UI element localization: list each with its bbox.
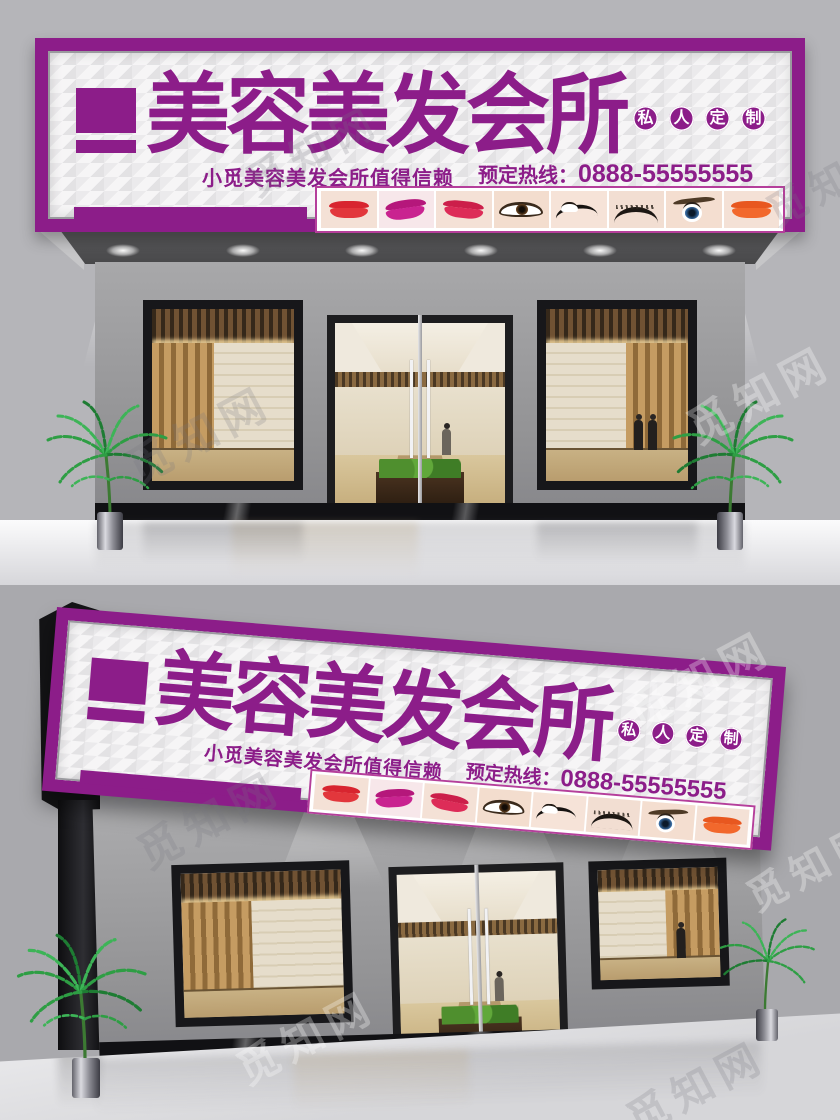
palm-fronds bbox=[710, 915, 820, 1015]
palm-fronds bbox=[660, 400, 800, 520]
photo-blue-eye bbox=[666, 191, 722, 228]
person-silhouette bbox=[442, 429, 451, 455]
door-handle bbox=[427, 360, 430, 458]
plant-pot bbox=[97, 512, 123, 550]
photo-liner-eye bbox=[531, 792, 586, 831]
decor-long-bar bbox=[80, 770, 302, 801]
potted-palm-left bbox=[10, 930, 160, 1100]
potted-palm-right bbox=[700, 915, 820, 1055]
photo-red-lips bbox=[313, 774, 368, 813]
storefront-signage-poster: 美容美发会所 私 人 定 制 小觅美容美发会所值得信赖 预定热线：0888-55… bbox=[0, 0, 840, 1120]
soffit bbox=[60, 230, 780, 264]
plant-pot bbox=[72, 1058, 100, 1098]
photo-orange-lips bbox=[694, 805, 749, 844]
photo-brown-eye bbox=[494, 191, 550, 228]
person-silhouette bbox=[634, 420, 643, 450]
decor-long-bar bbox=[74, 207, 307, 221]
potted-palm-left bbox=[40, 400, 180, 550]
badge-char: 定 bbox=[705, 106, 730, 131]
badge-char: 私 bbox=[616, 718, 642, 744]
photo-magenta-lips bbox=[379, 191, 435, 228]
shop-title: 美容美发会所 bbox=[146, 67, 656, 163]
badge-private-custom: 私 人 定 制 bbox=[633, 106, 766, 131]
shop-sign-lightbox: 美容美发会所 私 人 定 制 小觅美容美发会所值得信赖 预定热线：0888-55… bbox=[35, 38, 805, 232]
decor-bar bbox=[76, 140, 136, 153]
plant-pot bbox=[717, 512, 743, 550]
downlight-icon bbox=[583, 244, 617, 257]
badge-char: 人 bbox=[650, 721, 676, 747]
badge-char: 制 bbox=[741, 106, 766, 131]
door-mullion bbox=[418, 315, 422, 520]
entrance-door bbox=[327, 315, 513, 520]
potted-palm-right bbox=[660, 400, 800, 550]
photo-liner-eye bbox=[551, 191, 607, 228]
photo-crimson-lips bbox=[436, 191, 492, 228]
sign-face: 美容美发会所 私 人 定 制 小觅美容美发会所值得信赖 预定热线：0888-55… bbox=[48, 51, 792, 219]
hotline-label: 预定热线： bbox=[478, 165, 578, 187]
badge-char: 定 bbox=[684, 724, 710, 750]
door-reflection bbox=[293, 1050, 470, 1113]
storefront-wall bbox=[95, 262, 745, 520]
palm-fronds bbox=[40, 400, 180, 520]
downlight-icon bbox=[345, 244, 379, 257]
downlight-icon bbox=[702, 244, 736, 257]
photo-crimson-lips bbox=[422, 783, 477, 822]
photo-red-lips bbox=[321, 191, 377, 228]
badge-char: 人 bbox=[669, 106, 694, 131]
photo-false-lashes bbox=[609, 191, 665, 228]
downlight-icon bbox=[106, 244, 140, 257]
interior-view bbox=[180, 869, 344, 1017]
decor-bar bbox=[87, 707, 145, 724]
decor-square bbox=[76, 88, 136, 133]
photo-false-lashes bbox=[585, 797, 640, 836]
hotline: 预定热线：0888-55555555 bbox=[478, 159, 753, 189]
photo-strip bbox=[315, 186, 785, 233]
hotline-number: 0888-55555555 bbox=[578, 160, 753, 188]
photo-brown-eye bbox=[476, 788, 531, 827]
downlight-icon bbox=[226, 244, 260, 257]
door-handle bbox=[410, 360, 413, 458]
plant-pot bbox=[756, 1009, 778, 1041]
palm-fronds bbox=[10, 930, 160, 1065]
photo-magenta-lips bbox=[367, 779, 422, 818]
photo-blue-eye bbox=[640, 801, 695, 840]
display-window-left bbox=[171, 860, 353, 1027]
photo-orange-lips bbox=[724, 191, 780, 228]
scene-flat-storefront: 美容美发会所 私 人 定 制 小觅美容美发会所值得信赖 预定热线：0888-55… bbox=[0, 0, 840, 585]
badge-char: 私 bbox=[633, 106, 658, 131]
scene-perspective-storefront: 美容美发会所 私 人 定 制 小觅美容美发会所值得信赖 预定热线：0888-55… bbox=[0, 585, 840, 1120]
sign-face: 美容美发会所 私 人 定 制 小觅美容美发会所值得信赖 预定热线：0888-55… bbox=[55, 620, 773, 837]
downlight-icon bbox=[464, 244, 498, 257]
person-silhouette bbox=[495, 977, 505, 1001]
person-silhouette bbox=[676, 928, 686, 958]
person-silhouette bbox=[648, 420, 657, 450]
marble-base bbox=[95, 503, 745, 520]
decor-square bbox=[88, 658, 148, 705]
badge-char: 制 bbox=[718, 726, 744, 752]
